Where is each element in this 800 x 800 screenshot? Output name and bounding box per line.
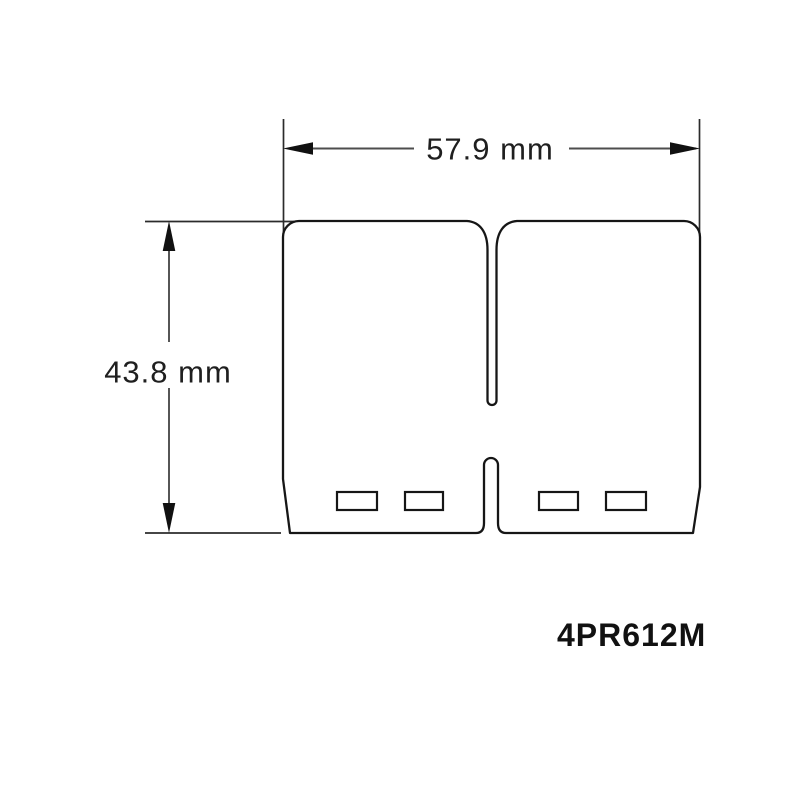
part-number-label: 4PR612M	[557, 617, 706, 653]
width-dim-arrow-right-icon	[670, 142, 700, 155]
width-dimension: 57.9 mm	[283, 119, 700, 236]
width-dim-label: 57.9 mm	[426, 132, 554, 167]
alignment-slot-4	[606, 492, 646, 510]
width-dim-arrow-left-icon	[283, 142, 313, 155]
height-dimension: 43.8 mm	[104, 221, 301, 533]
technical-drawing-page: 57.9 mm 43.8 mm 4PR612M	[0, 0, 800, 800]
alignment-slot-3	[539, 492, 578, 510]
alignment-slot-1	[337, 492, 377, 510]
reed-petal-outline	[283, 221, 700, 533]
height-dim-arrow-down-icon	[163, 503, 176, 533]
reed-petal-drawing	[283, 221, 700, 533]
alignment-slot-2	[405, 492, 443, 510]
technical-drawing-canvas: 57.9 mm 43.8 mm 4PR612M	[0, 0, 800, 800]
height-dim-label: 43.8 mm	[104, 355, 232, 390]
height-dim-arrow-up-icon	[163, 221, 176, 251]
